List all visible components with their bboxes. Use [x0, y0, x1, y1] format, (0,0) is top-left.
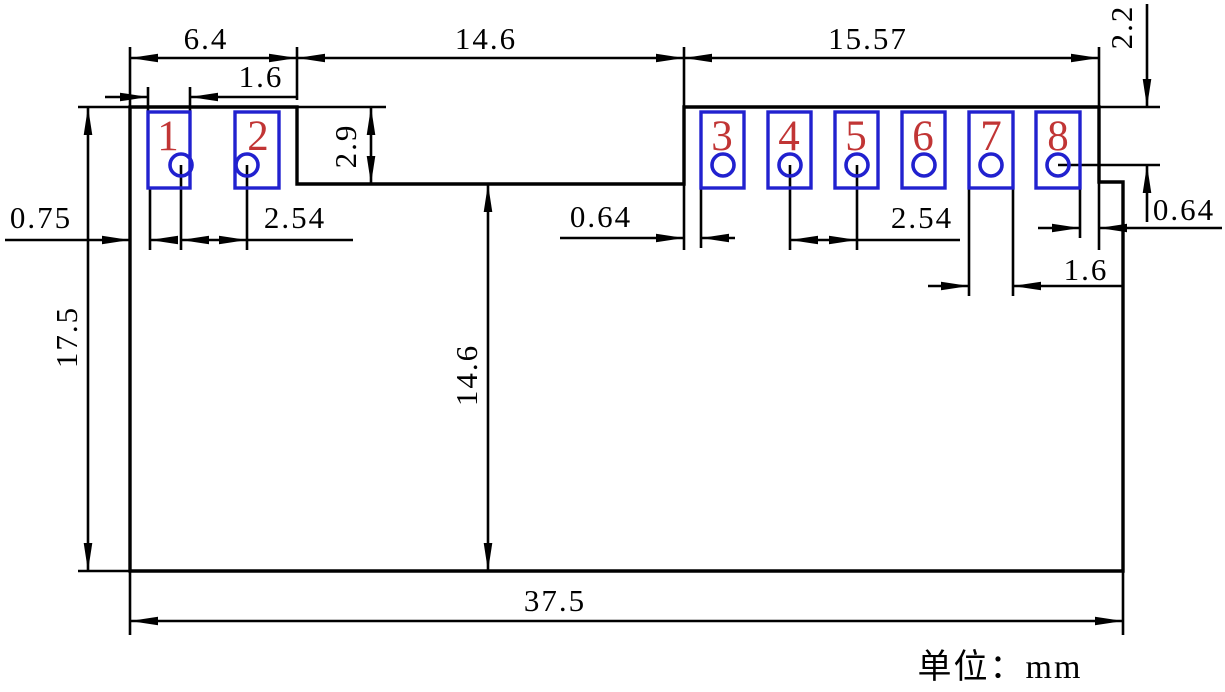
dim-total-width: 37.5 [130, 583, 1123, 621]
dim-label-body-height: 17.5 [49, 306, 84, 368]
dim-pad1-width: 1.6 [105, 59, 297, 97]
pin-8-number: 8 [1047, 113, 1069, 160]
dim-label-notch-to-pad3: 0.64 [570, 199, 632, 234]
dim-label-lower-section-height: 14.6 [449, 344, 484, 406]
dim-right-section-width: 15.57 [684, 21, 1099, 58]
dim-label-left-section-width: 6.4 [184, 21, 229, 56]
dim-label-right-hole-pitch: 2.54 [891, 200, 953, 235]
dim-left-hole-pitch: 2.54 [181, 200, 353, 240]
dim-notch-width: 14.6 [297, 21, 684, 58]
pin-2-number: 2 [247, 113, 269, 160]
dim-notch-to-pad3: 0.64 [560, 199, 735, 238]
pad-3: 3 [701, 112, 744, 188]
pad-6: 6 [902, 112, 945, 188]
pin-5-number: 5 [845, 113, 867, 160]
pin-6-number: 6 [912, 113, 934, 160]
dim-label-top-edge-to-hole-center: 2.2 [1104, 5, 1139, 50]
technical-drawing-canvas: 6.4 14.6 15.57 1.6 2.9 2.2 0.75 2.54 0.6… [0, 0, 1225, 692]
dim-top-edge-to-hole-center: 2.2 [1104, 4, 1147, 222]
pad-5: 5 [835, 112, 878, 188]
pad-2: 2 [235, 112, 279, 188]
dim-label-pad8-to-right-edge: 0.64 [1153, 192, 1215, 227]
pad-7: 7 [969, 112, 1013, 188]
dim-label-total-width: 37.5 [524, 583, 586, 618]
pin-4-number: 4 [778, 113, 800, 160]
dim-left-section-width: 6.4 [130, 21, 297, 58]
pin-3-number: 3 [711, 113, 733, 160]
dim-label-left-hole-pitch: 2.54 [264, 200, 326, 235]
pad-4: 4 [768, 112, 811, 188]
dim-pad7-width: 1.6 [928, 252, 1123, 287]
dim-label-notch-depth: 2.9 [328, 124, 363, 169]
dim-label-pad7-width: 1.6 [1064, 252, 1109, 287]
dim-label-left-edge-to-pad1: 0.75 [10, 200, 72, 235]
pin-1-number: 1 [157, 113, 179, 160]
dim-label-right-section-width: 15.57 [828, 21, 908, 56]
dim-pad8-to-right-edge: 0.64 [1038, 192, 1222, 228]
dim-lower-section-height: 14.6 [449, 184, 488, 571]
pin-7-number: 7 [980, 113, 1002, 160]
pad-8: 8 [1036, 112, 1080, 188]
dim-body-height: 17.5 [49, 107, 88, 571]
pcb-dimension-drawing: 6.4 14.6 15.57 1.6 2.9 2.2 0.75 2.54 0.6… [0, 0, 1225, 692]
dim-label-pad1-width: 1.6 [239, 59, 284, 94]
pad-1: 1 [148, 112, 192, 188]
dim-label-notch-width: 14.6 [455, 21, 517, 56]
dim-right-hole-pitch: 2.54 [790, 200, 960, 240]
dim-notch-depth: 2.9 [328, 107, 371, 184]
unit-label: 单位：mm [918, 648, 1083, 686]
